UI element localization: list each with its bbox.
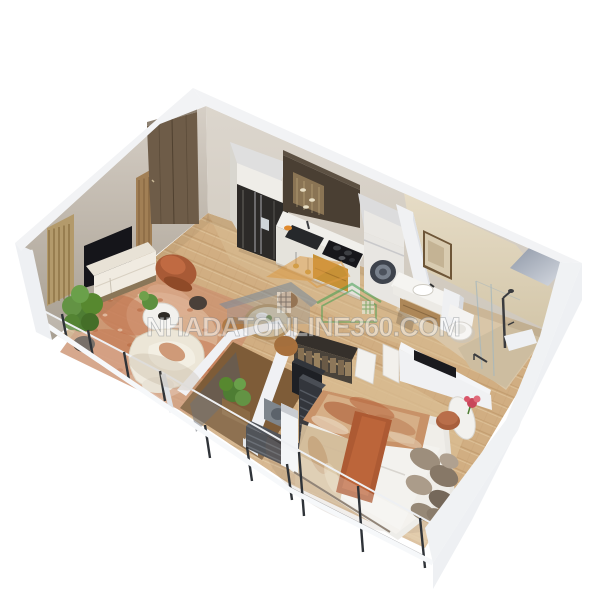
svg-text:NHADATONLINE360.COM: NHADATONLINE360.COM bbox=[146, 312, 460, 342]
